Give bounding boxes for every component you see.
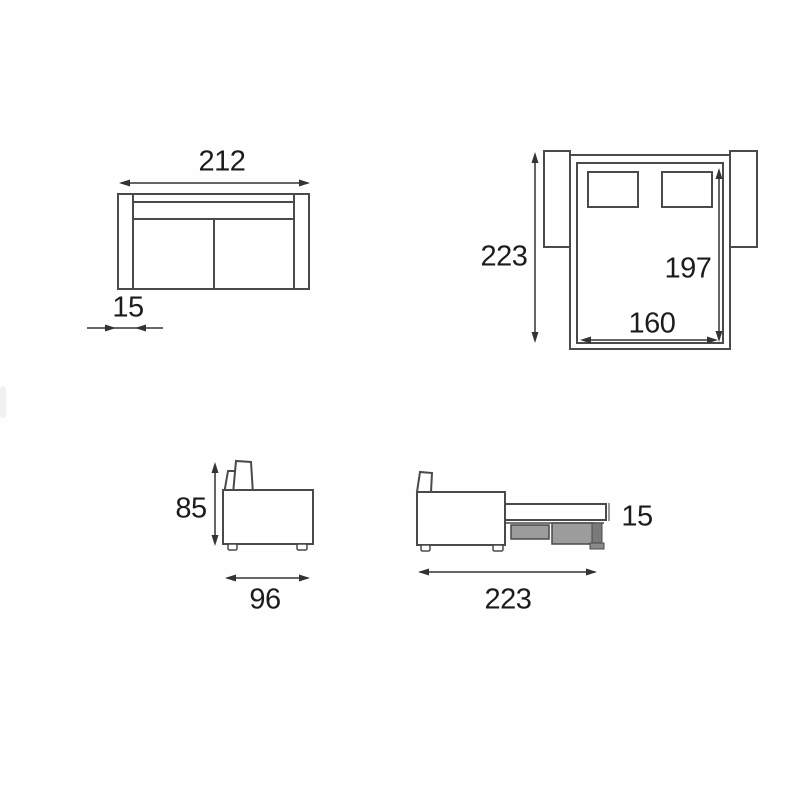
diagram-canvas — [0, 0, 800, 800]
side-height-label: 85 — [175, 495, 206, 524]
arrowhead-right-icon — [586, 569, 597, 576]
arrowhead-right-icon — [105, 325, 116, 332]
open-front-foot — [421, 545, 430, 551]
side-sofa-body — [223, 490, 313, 544]
top-bed-length-label: 197 — [665, 255, 712, 284]
open-thickness-label: 15 — [621, 503, 652, 532]
arrowhead-up-icon — [212, 462, 219, 473]
side-rear-foot — [297, 544, 307, 550]
top-left-armrest — [544, 151, 570, 247]
arrowhead-right-icon — [299, 575, 310, 582]
arrowhead-down-icon — [212, 535, 219, 546]
arrowhead-left-icon — [418, 569, 429, 576]
open-sofa-body — [417, 492, 505, 545]
pillow-left — [588, 172, 638, 207]
top-right-armrest — [730, 151, 757, 247]
front-arm-width-label: 15 — [112, 294, 143, 323]
side-view-open — [417, 472, 609, 576]
arrowhead-up-icon — [532, 152, 539, 163]
front-width-label: 212 — [199, 148, 246, 177]
arrowhead-left-icon — [135, 325, 146, 332]
open-bed-leg — [592, 523, 602, 544]
support-box-left — [511, 525, 549, 539]
arrowhead-down-icon — [532, 332, 539, 343]
side-front-foot — [228, 544, 237, 550]
side-depth-label: 96 — [249, 586, 280, 615]
sofa-bed-dimension-diagram: 212 15 223 197 160 85 96 223 15 — [0, 0, 800, 800]
pillow-right — [662, 172, 712, 207]
top-depth-label: 223 — [481, 243, 528, 272]
open-backrest-slab — [417, 472, 432, 492]
top-bed-width-label: 160 — [629, 310, 676, 339]
open-bed-leg-foot — [590, 543, 604, 549]
side-view-closed — [212, 461, 314, 582]
open-rear-foot — [493, 545, 503, 551]
arrowhead-right-icon — [299, 180, 310, 187]
open-length-label: 223 — [485, 586, 532, 615]
arrowhead-left-icon — [225, 575, 236, 582]
arrowhead-left-icon — [119, 180, 130, 187]
open-bed-platform — [505, 504, 606, 520]
support-box-right — [552, 523, 594, 544]
